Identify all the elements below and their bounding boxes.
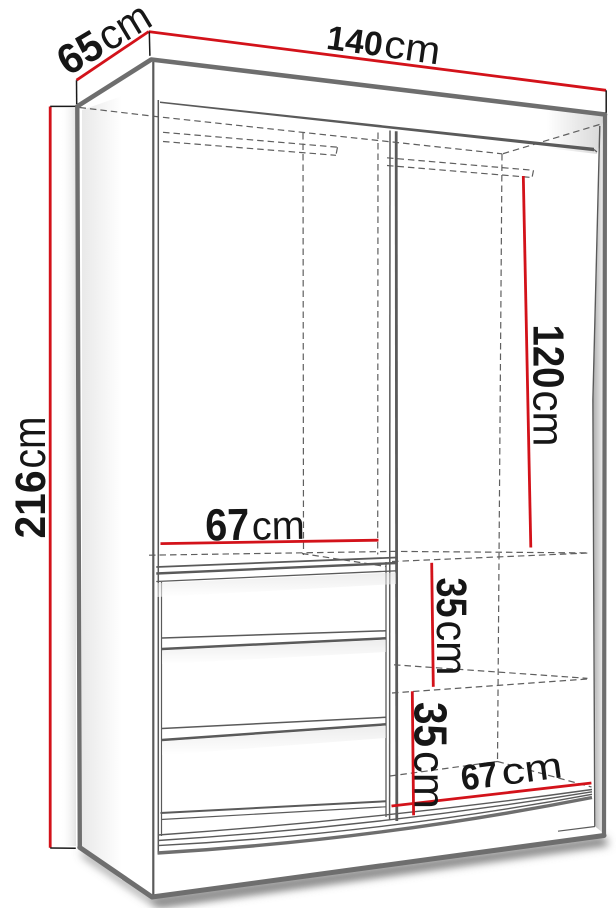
- svg-text:67: 67: [205, 499, 250, 551]
- svg-text:120: 120: [524, 325, 573, 389]
- svg-text:cm: cm: [427, 621, 476, 676]
- svg-text:35: 35: [427, 578, 475, 618]
- svg-text:67: 67: [458, 753, 500, 798]
- svg-text:cm: cm: [405, 751, 454, 809]
- svg-text:cm: cm: [3, 417, 55, 469]
- svg-text:cm: cm: [251, 504, 305, 549]
- svg-text:cm: cm: [524, 391, 573, 447]
- svg-text:35: 35: [405, 702, 457, 747]
- svg-text:cm: cm: [499, 744, 565, 793]
- svg-text:216: 216: [7, 471, 55, 539]
- svg-text:140: 140: [324, 19, 385, 64]
- svg-text:cm: cm: [382, 23, 443, 73]
